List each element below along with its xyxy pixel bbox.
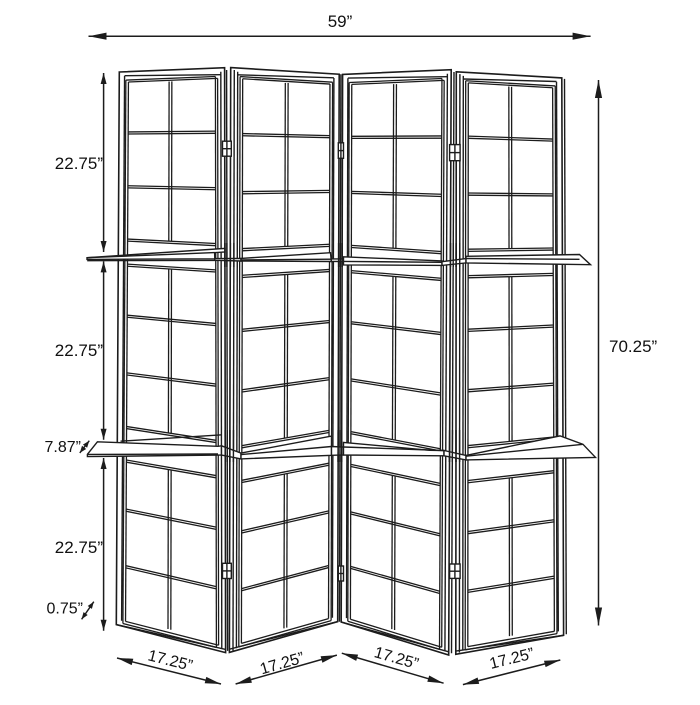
svg-text:70.25”: 70.25” (609, 337, 658, 356)
svg-text:22.75”: 22.75” (55, 538, 104, 557)
svg-text:0.75”: 0.75” (47, 601, 83, 618)
svg-text:59”: 59” (328, 12, 353, 31)
svg-text:7.87”: 7.87” (45, 439, 81, 456)
svg-text:22.75”: 22.75” (55, 341, 104, 360)
svg-text:22.75”: 22.75” (55, 154, 104, 173)
